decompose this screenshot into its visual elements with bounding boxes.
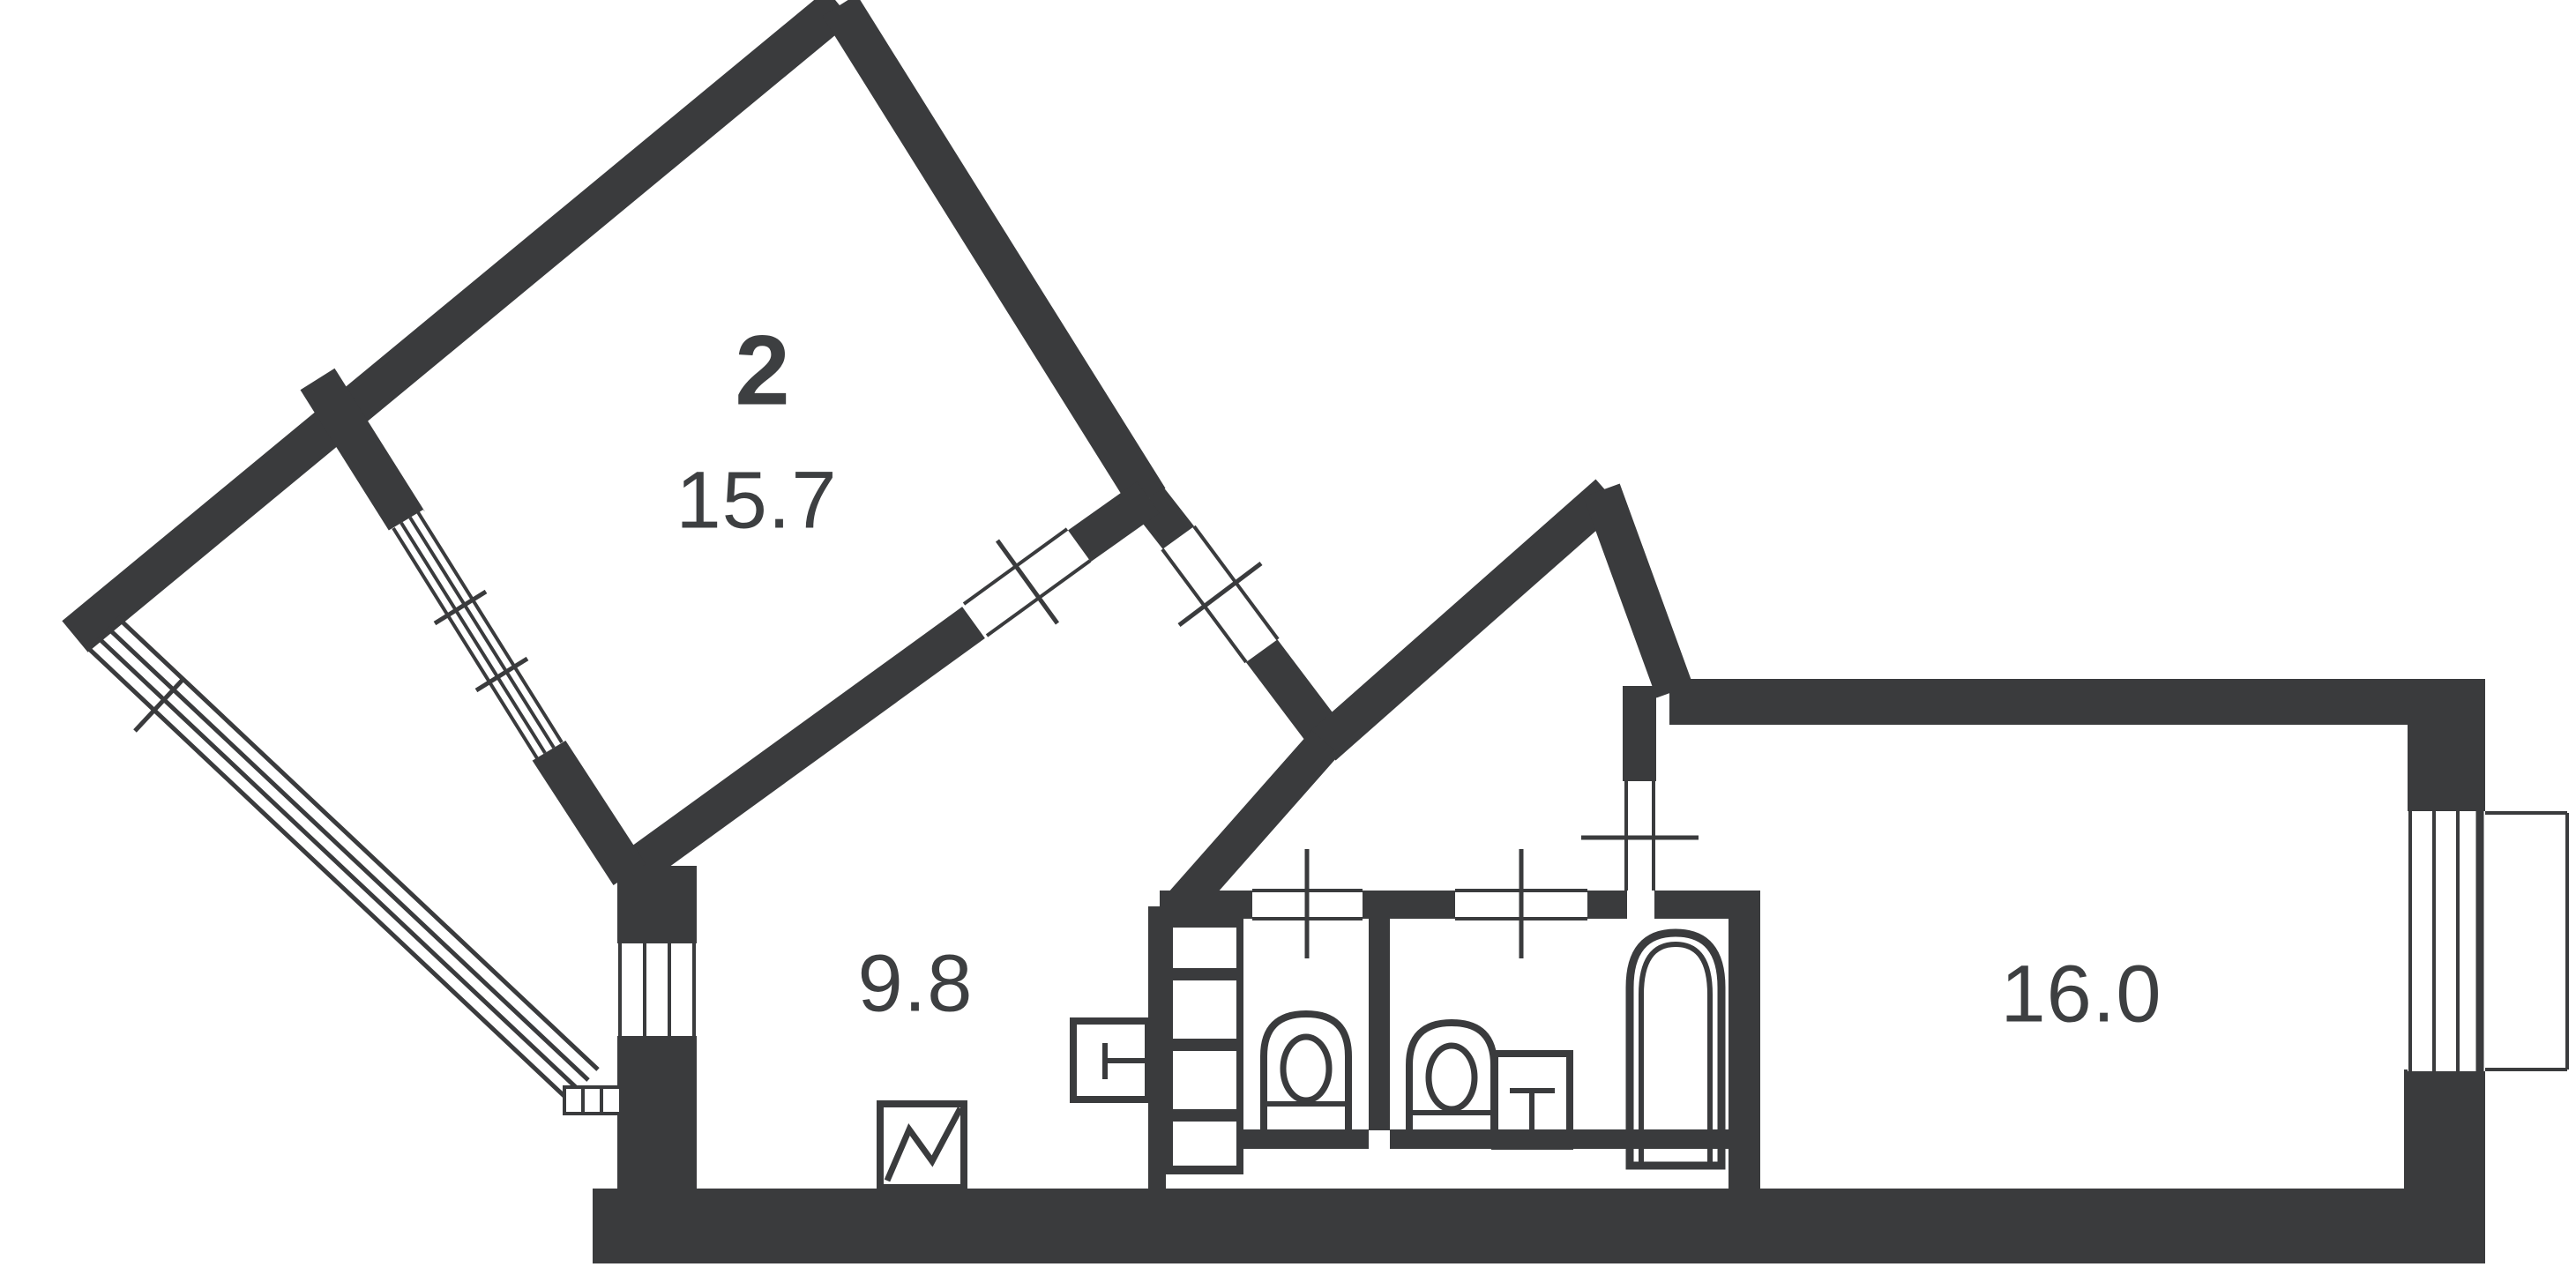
balcony-railing-1 [88, 648, 569, 1100]
wall-hall-northeast [1323, 494, 1609, 746]
toilet-bath1-seat [1283, 1037, 1329, 1100]
vent-slot-3 [1173, 1051, 1236, 1109]
kitchen-stove-zigzag [887, 1108, 960, 1181]
wall-room2-northeast [840, 5, 1148, 499]
toilet-bath2-bowl [1409, 1023, 1494, 1142]
vent-slot-4 [1173, 1122, 1236, 1166]
window-kitchen-opening [617, 943, 697, 1036]
vent-slot-2 [1173, 980, 1236, 1039]
wall-kitchen-west-upper [617, 866, 697, 947]
wall-room16-northeast-corner [2408, 679, 2485, 813]
wall-hall-kitchen [1179, 742, 1325, 908]
wall-hall-east [1602, 490, 1675, 691]
kitchen-area-label: 9.8 [858, 938, 974, 1031]
room16-area-label: 16.0 [2000, 949, 2162, 1041]
window-room2-pane-3 [410, 518, 554, 748]
window-balcony-end-opening [564, 1087, 621, 1114]
wall-south [593, 1189, 2485, 1263]
floorplan-stage: 2 15.7 9.8 16.0 [0, 0, 2576, 1267]
floorplan-svg [0, 0, 2576, 1267]
wall-room16-north [1669, 679, 2413, 725]
room2-number-label: 2 [735, 314, 790, 428]
window-room2-pane-1 [393, 528, 537, 758]
wall-bath-north-east [1654, 891, 1760, 919]
balcony-railing-tick [135, 680, 183, 731]
wall-bath-east [1729, 919, 1760, 1189]
wall-kitchen-west-lower [617, 1034, 697, 1190]
wall-room2-southeast-lower [628, 622, 974, 873]
wall-bath-partition [1369, 919, 1390, 1130]
window-room2-pane-4 [418, 512, 562, 742]
window-room2-pane-2 [401, 523, 545, 753]
wall-room2-southwest-lower [548, 749, 630, 875]
wall-room2-southeast-upper [1079, 497, 1148, 547]
room2-area-label: 15.7 [676, 455, 837, 548]
window-room16-opening [2408, 811, 2485, 1071]
vent-slot-1 [1173, 928, 1236, 968]
wall-room16-door-stub [1623, 686, 1656, 781]
toilet-bath2-seat [1429, 1046, 1475, 1109]
toilet-bath1-bowl [1264, 1014, 1348, 1133]
